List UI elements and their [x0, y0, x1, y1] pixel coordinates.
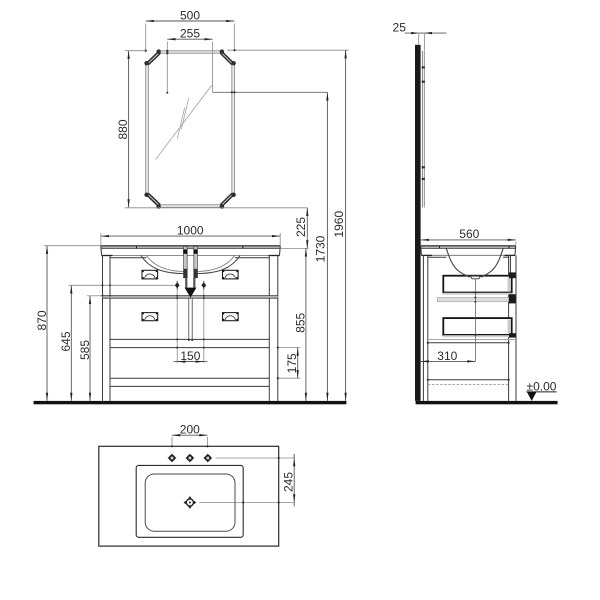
- svg-text:585: 585: [78, 340, 92, 360]
- svg-text:150: 150: [180, 349, 200, 363]
- svg-text:310: 310: [437, 349, 457, 363]
- svg-text:645: 645: [59, 331, 73, 351]
- svg-text:1730: 1730: [313, 235, 327, 262]
- svg-text:200: 200: [180, 423, 200, 437]
- svg-text:255: 255: [180, 26, 200, 40]
- svg-text:±0.00: ±0.00: [527, 379, 557, 393]
- svg-text:560: 560: [459, 227, 479, 241]
- svg-text:500: 500: [180, 8, 200, 22]
- svg-text:175: 175: [285, 353, 299, 373]
- svg-text:1960: 1960: [332, 211, 346, 238]
- svg-text:245: 245: [282, 472, 296, 492]
- svg-text:870: 870: [35, 310, 49, 330]
- svg-text:880: 880: [116, 119, 130, 139]
- svg-text:1000: 1000: [177, 223, 204, 237]
- svg-text:25: 25: [393, 21, 407, 35]
- svg-text:855: 855: [293, 312, 307, 332]
- svg-text:225: 225: [294, 217, 308, 237]
